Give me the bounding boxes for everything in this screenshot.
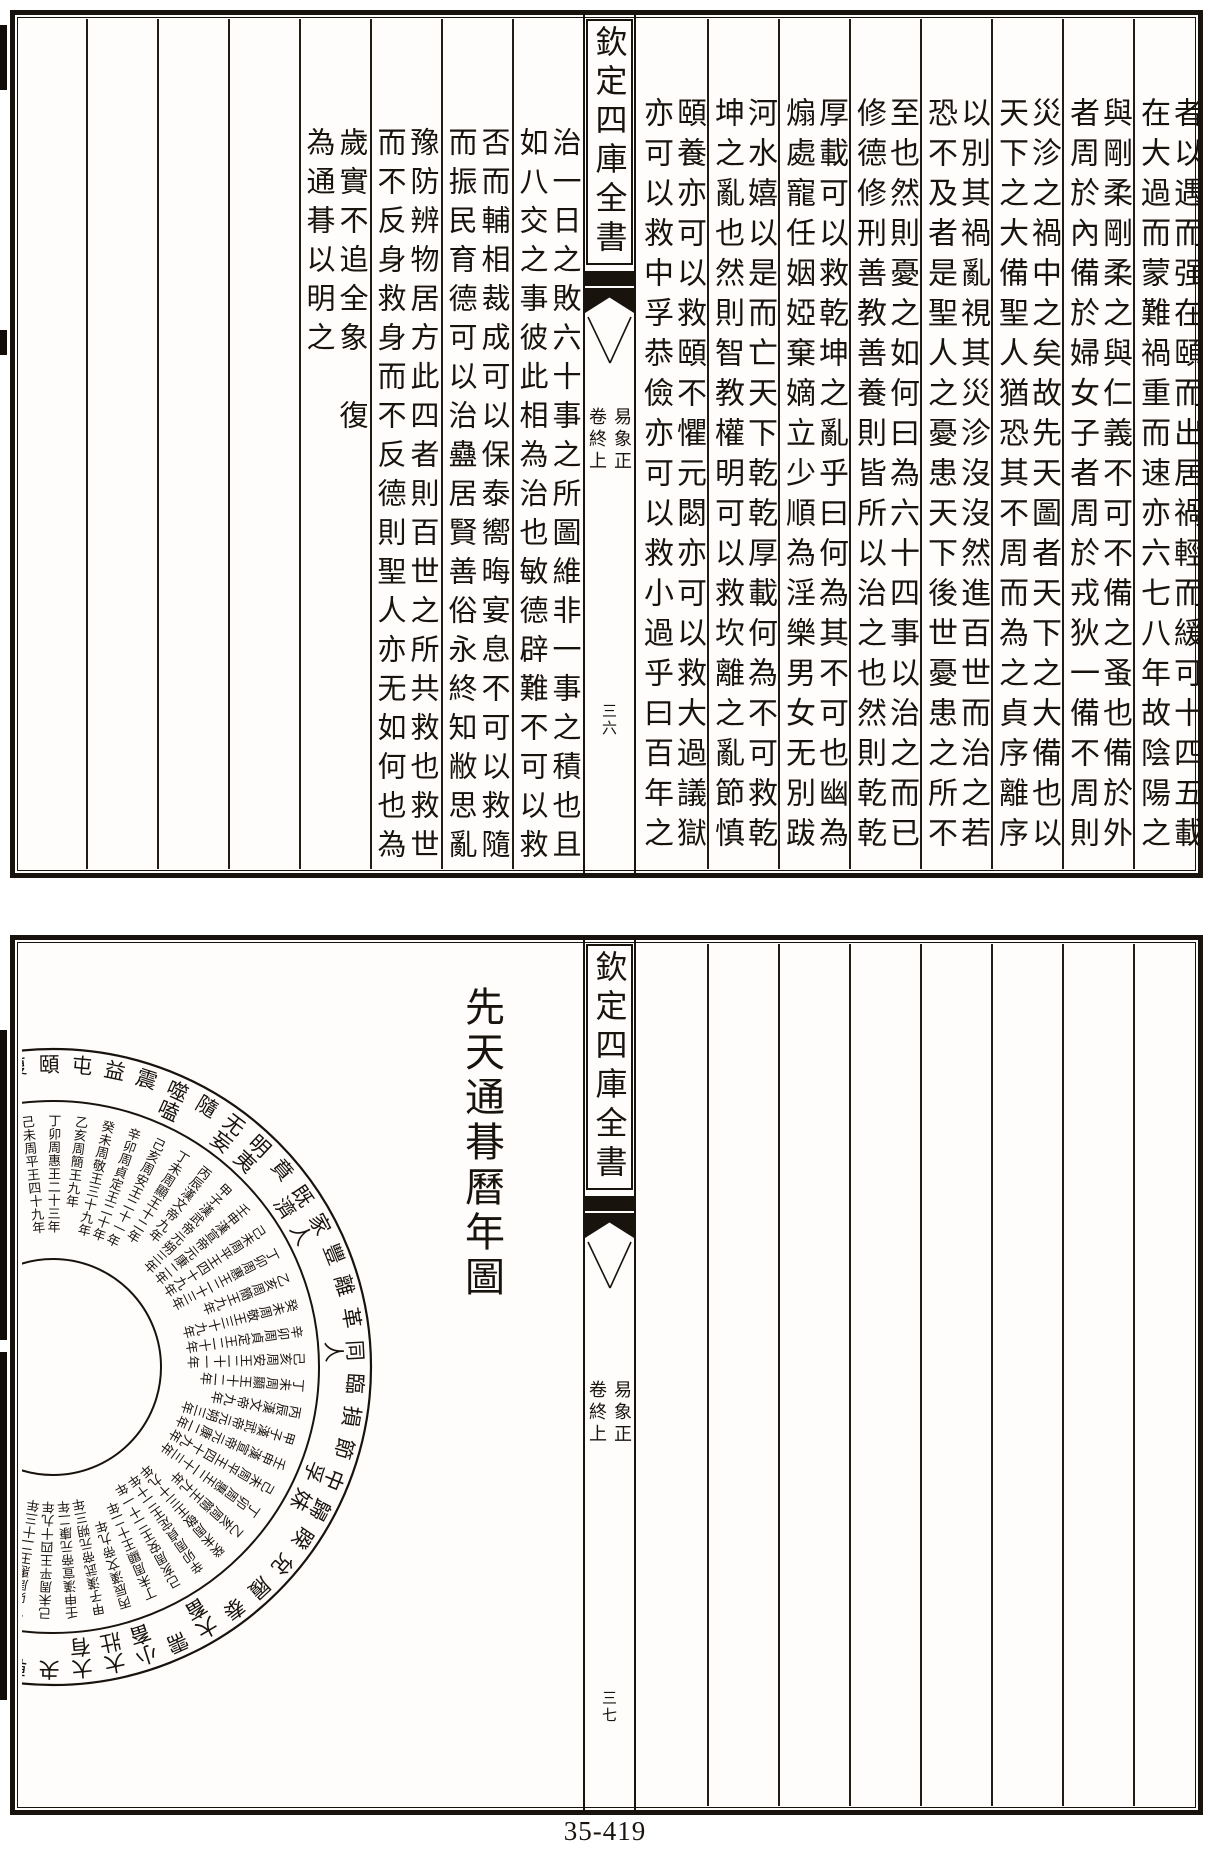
- fishtail-whiskers-icon: [585, 1240, 634, 1292]
- banxin-chapter: 卷終上: [586, 407, 608, 473]
- hexagram-label: 損: [338, 1404, 365, 1429]
- banxin-column-top: 欽定四庫全書 易象正 卷終上 三六: [583, 15, 636, 873]
- banxin-title: 欽定四庫全書: [587, 25, 633, 259]
- text-column: 天下之大備聖人猶恐其不周而為之貞序離序: [992, 97, 1028, 871]
- year-label: 甲子漢武帝元朔三年: [71, 1496, 106, 1617]
- scan-edge-artifact: [0, 1030, 7, 1340]
- column-rule: [920, 944, 922, 1806]
- hexagram-label: 家人: [285, 1209, 335, 1249]
- year-label: 己亥周安王二十一年: [112, 1479, 183, 1591]
- year-label: 甲子漢武帝元朔三年: [141, 1181, 235, 1277]
- folio-number: 三六: [585, 703, 634, 737]
- banxin-book-name: 易象正: [611, 1380, 633, 1446]
- year-label: 丙辰漢文帝九年: [208, 1390, 303, 1420]
- book-scan: 欽定四庫全書 易象正 卷終上 三六 者以遇而强在頤而出居禍輕而緩可十四五載在大過…: [0, 0, 1210, 1850]
- year-label: 辛卯周貞定王二十年: [125, 1471, 206, 1577]
- hexagram-label: 臨: [342, 1372, 367, 1394]
- hexagram-label: 離: [330, 1272, 359, 1299]
- year-label: 丁卯周惠王二十三年: [47, 1113, 61, 1234]
- text-column: 豫防辨物居方此四者則百世之所共救也救世: [404, 127, 440, 871]
- year-label: 癸未周敬王三十九年: [137, 1461, 228, 1560]
- fishtail-icon: [585, 1196, 634, 1211]
- year-label: 己亥周安王二十一年: [185, 1352, 306, 1369]
- hexagram-label: 乾: [15, 1654, 28, 1680]
- column-rule: [991, 944, 993, 1806]
- year-label: 癸未周敬王三十九年: [180, 1297, 301, 1340]
- hexagram-label: 兌: [266, 1548, 298, 1580]
- year-label: 丁未周顯王十二年: [104, 1499, 158, 1603]
- banxin-column-bottom: 欽定四庫全書 易象正 卷終上 三七: [583, 940, 636, 1810]
- text-column: 治一日之敗六十事之所圖維非一事之積也且: [546, 127, 582, 871]
- column-rule: [86, 19, 88, 869]
- hexagram-label: 大壯: [98, 1628, 128, 1677]
- diagram-title: 先天通朞曆年圖: [458, 986, 504, 1301]
- banxin-title-box: 欽定四庫全書: [586, 944, 633, 1190]
- hexagram-label: 節: [330, 1435, 359, 1462]
- scan-edge-artifact: [0, 25, 7, 90]
- text-column: 而振民育德可以治蠱居賢善俗永終知敝思亂: [442, 127, 478, 871]
- hexagram-label: 大畜: [181, 1593, 222, 1643]
- text-column: 以別其禍亂視其災沴沒沒然進百世而治之若: [954, 97, 990, 871]
- hexagram-label: 隨: [191, 1091, 221, 1122]
- hexagram-label: 明夷: [229, 1130, 275, 1178]
- text-column: 者以遇而强在頤而出居禍輕而緩可十四五載: [1167, 97, 1203, 871]
- bottom-page: 欽定四庫全書 易象正 卷終上 三七 先天通朞曆年圖 復頤屯益震噬嗑隨无妄明夷賁既…: [10, 935, 1203, 1815]
- hexagram-label: 歸妹: [285, 1485, 335, 1525]
- column-rule: [849, 944, 851, 1806]
- year-label: 癸未周敬王三十九年: [76, 1118, 116, 1239]
- text-column: 頤養亦可以救頤不懼元閟亦可以救大過議獄: [670, 97, 706, 871]
- text-column: 與剛柔剛柔之與仁義不可不備之蚤也備於外: [1096, 97, 1132, 871]
- column-rule: [157, 19, 159, 869]
- year-label: 己未周平王四十九年: [21, 1114, 46, 1236]
- column-rule: [1133, 944, 1135, 1806]
- column-rule: [228, 19, 230, 869]
- year-label: 壬申漢宣帝元康二年: [57, 1499, 79, 1621]
- hexagram-label: 賁: [266, 1154, 298, 1186]
- text-column: 至也然則憂之如何曰為六十四事以治之而已: [883, 97, 919, 871]
- hexagram-label: 大有: [68, 1634, 93, 1681]
- diagram-ring: [15, 1101, 319, 1633]
- year-label: 辛卯周貞定王二十年: [91, 1125, 143, 1244]
- hexagram-label: 屯: [70, 1053, 93, 1079]
- hexagram-label: 夬: [38, 1657, 59, 1681]
- year-label: 壬申漢宣帝元康二年: [172, 1413, 288, 1472]
- hexagram-label: 履: [243, 1572, 275, 1604]
- year-label: 丁未周顯王十二年: [198, 1372, 306, 1393]
- text-column: 在大過而蒙難禍重而速亦六七八年故陰陽之: [1134, 97, 1170, 871]
- hexagram-label: 需: [163, 1627, 192, 1658]
- year-label: 己未周平王四十九年: [160, 1223, 268, 1300]
- text-column: 如八交之事彼此相為治也敏德辟難不可以救: [513, 127, 549, 871]
- year-label: 丙辰漢文帝九年: [93, 1517, 133, 1611]
- hexagram-label: 頤: [38, 1053, 59, 1077]
- year-label: 丁卯周惠王二十三年: [168, 1246, 282, 1313]
- year-label: 己亥周安王二十一年: [104, 1135, 168, 1250]
- diagram-ring: [15, 1259, 161, 1475]
- fishtail-icon: [585, 271, 634, 286]
- text-column: 歲實不追全象 復: [333, 127, 369, 871]
- scan-edge-artifact: [0, 1352, 7, 1700]
- text-column: 者周於內備於婦女子者周於戎狄一備不周則: [1063, 97, 1099, 871]
- hexagram-label: 泰: [218, 1593, 249, 1625]
- banxin-chapter: 卷終上: [586, 1380, 608, 1446]
- banxin-caption: 易象正 卷終上: [585, 1380, 634, 1446]
- year-label: 乙亥周簡王九年: [167, 1468, 246, 1541]
- year-label: 己未周平王四十九年: [38, 1499, 55, 1620]
- text-column: 恐不及者是聖人之憂患天下後世憂患之所不: [921, 97, 957, 871]
- column-rule: [778, 944, 780, 1806]
- banxin-title-box: 欽定四庫全書: [586, 19, 633, 265]
- hexagram-label: 震: [133, 1065, 160, 1094]
- text-column: 修德修刑善教善養則皆所以治之也然則乾乾: [850, 97, 886, 871]
- year-label: 乙亥周簡王九年: [199, 1271, 292, 1317]
- year-label: 乙亥周簡王九年: [65, 1114, 89, 1209]
- hexagram-label: 小畜: [126, 1619, 160, 1669]
- hexagram-label: 革: [338, 1305, 365, 1330]
- banxin-caption: 易象正 卷終上: [585, 407, 634, 473]
- text-column: 而不反身救身而不反德則聖人亦无如何也為: [371, 127, 407, 871]
- year-label: 丁卯周惠王二十三年: [157, 1439, 263, 1520]
- folio-number: 三七: [585, 1690, 634, 1724]
- column-rule: [707, 944, 709, 1806]
- fishtail-icon: [585, 288, 634, 313]
- hexagram-label: 噬嗑: [154, 1076, 192, 1126]
- top-page: 欽定四庫全書 易象正 卷終上 三六 者以遇而强在頤而出居禍輕而緩可十四五載在大過…: [10, 10, 1203, 878]
- text-column: 厚載可以救乾坤之亂乎曰何為其不可也幽為: [812, 97, 848, 871]
- year-label: 辛卯周貞定王二十年: [183, 1324, 305, 1354]
- text-column: 亦可以救中孚恭儉亦可以救小過乎曰百年之: [637, 97, 673, 871]
- hexagram-label: 同人: [321, 1339, 367, 1362]
- catalog-number: 35-419: [0, 1816, 1210, 1847]
- text-column: 為通朞以明之: [300, 127, 336, 871]
- text-column: 河水嬉以是而亡天下乾乾厚載何為不可救乾: [741, 97, 777, 871]
- year-label: 丁未周顯王十二年: [124, 1148, 192, 1247]
- fishtail-icon: [585, 1213, 634, 1238]
- year-label: 丁卯周惠王二十三年: [15, 1497, 41, 1619]
- hexagram-label: 无妄: [206, 1109, 250, 1158]
- year-label: 壬申漢宣帝元康二年: [151, 1201, 253, 1288]
- column-rule: [1062, 944, 1064, 1806]
- hexagram-label: 既濟: [269, 1181, 318, 1224]
- text-column: 坤之亂也然則智教權明可以救坎離之亂節慎: [708, 97, 744, 871]
- year-label: 甲子漢武帝元朔三年: [178, 1399, 298, 1446]
- hexagram-label: 睽: [286, 1522, 318, 1553]
- banxin-title: 欽定四庫全書: [587, 950, 633, 1184]
- hexagram-label: 益: [102, 1057, 127, 1085]
- fishtail-whiskers-icon: [585, 315, 634, 367]
- text-column: 災沴之禍中之矣故先天圖者天下之大備也以: [1025, 97, 1061, 871]
- hexagram-label: 中孚: [298, 1458, 348, 1494]
- hexagram-label: 豐: [318, 1240, 348, 1268]
- hexagram-label: 復: [15, 1054, 28, 1080]
- diagram-ring: [15, 1049, 371, 1685]
- text-column: 煽處寵任姻婭棄嫡立少順為淫樂男女无別跋: [779, 97, 815, 871]
- banxin-book-name: 易象正: [611, 407, 633, 473]
- text-column: 否而輔相裁成可以保泰嚮晦宴息不可以救隨: [475, 127, 511, 871]
- year-label: 丙辰漢文帝九年: [146, 1163, 214, 1246]
- year-label: 己未周平王四十九年: [165, 1426, 277, 1497]
- scan-edge-artifact: [0, 330, 7, 355]
